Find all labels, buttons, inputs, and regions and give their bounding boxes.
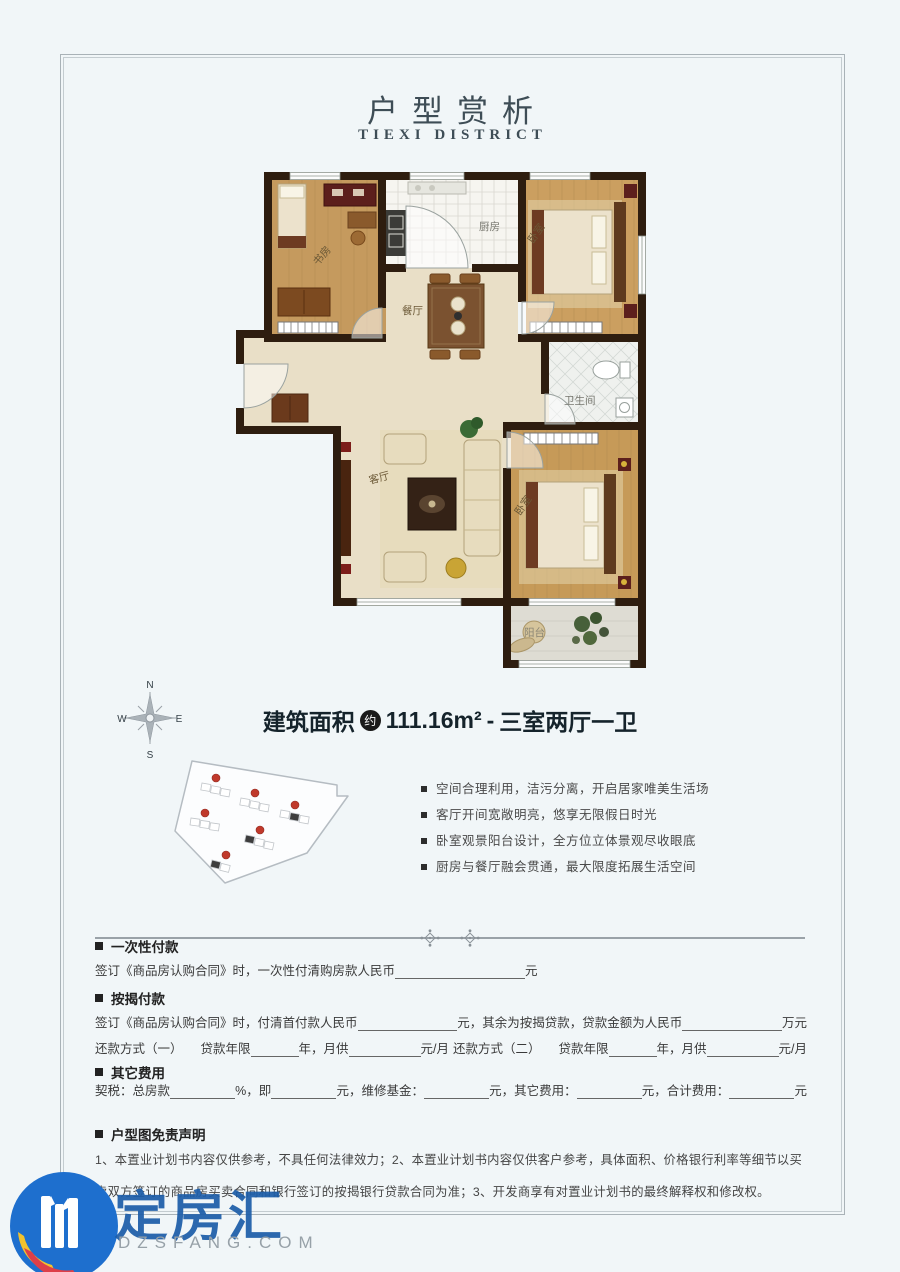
area-separator: - bbox=[487, 707, 495, 734]
one-time-payment-line: 签订《商品房认购合同》时，一次性付清购房款人民币 元 bbox=[95, 960, 807, 979]
list-item: 客厅开间宽敞明亮，悠享无限假日时光 bbox=[421, 808, 726, 823]
fill-in-blank bbox=[707, 1042, 779, 1057]
dining-table bbox=[428, 274, 484, 359]
feature-list: 空间合理利用，洁污分离，开启居家唯美生活场 客厅开间宽敞明亮，悠享无限假日时光 … bbox=[421, 782, 726, 886]
mortgage-line-2: 还款方式（一） 贷款年限 年，月供 元/月 还款方式（二） 贷款年限 年，月供 … bbox=[95, 1038, 807, 1057]
pay-text: 年，月供 bbox=[299, 1038, 349, 1057]
disclaimer-line-1: 1、本置业计划书内容仅供参考，不具任何法律效力；2、本置业计划书内容仅供客户参考… bbox=[95, 1150, 807, 1168]
list-item: 卧室观景阳台设计，全方位立体景观尽收眼底 bbox=[421, 834, 726, 849]
heading-text: 其它费用 bbox=[111, 1062, 165, 1082]
section-divider bbox=[95, 929, 805, 947]
repayment-option-1: 还款方式（一） 贷款年限 年，月供 元/月 bbox=[95, 1038, 449, 1057]
feature-text: 厨房与餐厅融会贯通，最大限度拓展生活空间 bbox=[436, 860, 696, 875]
feature-text: 空间合理利用，洁污分离，开启居家唯美生活场 bbox=[436, 782, 709, 797]
divider-ornament-icon bbox=[460, 929, 480, 947]
fill-in-blank bbox=[577, 1084, 642, 1099]
pay-text: 万元 bbox=[782, 1012, 807, 1031]
study-bed bbox=[278, 184, 306, 248]
pay-text: 元，合计费用： bbox=[642, 1080, 730, 1099]
bullet-square-icon bbox=[421, 812, 427, 818]
brochure-page: 户型赏析 TIEXI DISTRICT bbox=[0, 0, 900, 1272]
approx-badge: 约 bbox=[360, 710, 381, 731]
fill-in-blank bbox=[424, 1084, 489, 1099]
fill-in-blank bbox=[358, 1016, 458, 1031]
label-kitchen: 厨房 bbox=[479, 220, 500, 233]
label-dining: 餐厅 bbox=[402, 304, 423, 317]
pay-text: 签订《商品房认购合同》时，一次性付清购房款人民币 bbox=[95, 960, 395, 979]
feature-text: 客厅开间宽敞明亮，悠享无限假日时光 bbox=[436, 808, 657, 823]
fill-in-blank bbox=[349, 1042, 421, 1057]
divider-line bbox=[95, 937, 805, 939]
bullet-square-icon bbox=[421, 864, 427, 870]
disclaimer-heading: 户型图免责声明 bbox=[95, 1124, 206, 1144]
hall-cabinet bbox=[272, 394, 308, 422]
pay-text: 贷款年限 bbox=[201, 1038, 251, 1057]
pay-text: 贷款年限 bbox=[558, 1038, 608, 1057]
one-time-payment-heading: 一次性付款 bbox=[95, 936, 179, 956]
study-radiator bbox=[278, 322, 338, 333]
pay-text: 元，维修基金： bbox=[336, 1080, 424, 1099]
pay-text: 元，其它费用： bbox=[489, 1080, 577, 1099]
feature-text: 卧室观景阳台设计，全方位立体景观尽收眼底 bbox=[436, 834, 696, 849]
fill-in-blank bbox=[170, 1084, 235, 1099]
watermark-domain: DZSFANG.COM bbox=[118, 1233, 320, 1253]
compass-w: W bbox=[117, 714, 127, 725]
mortgage-line-1: 签订《商品房认购合同》时，付清首付款人民币 元，其余为按揭贷款，贷款金额为人民币… bbox=[95, 1012, 807, 1031]
fill-in-blank bbox=[682, 1016, 782, 1031]
pay-text: 签订《商品房认购合同》时，付清首付款人民币 bbox=[95, 1012, 358, 1031]
fill-in-blank bbox=[395, 964, 525, 979]
page-subtitle: TIEXI DISTRICT bbox=[0, 127, 900, 144]
heading-square-icon bbox=[95, 1068, 103, 1076]
other-costs-line: 契税：总房款 %，即 元，维修基金： 元，其它费用： 元，合计费用： 元 bbox=[95, 1080, 807, 1099]
repayment-option-2: 还款方式（二） 贷款年限 年，月供 元/月 bbox=[453, 1038, 807, 1057]
pay-text: 元，其余为按揭贷款，贷款金额为人民币 bbox=[457, 1012, 682, 1031]
fill-in-blank bbox=[271, 1084, 336, 1099]
heading-text: 户型图免责声明 bbox=[111, 1124, 206, 1144]
area-summary: 建筑面积 约 111.16m² - 三室两厅一卫 bbox=[160, 703, 740, 737]
other-costs-heading: 其它费用 bbox=[95, 1062, 165, 1082]
fill-in-blank bbox=[251, 1042, 299, 1057]
list-item: 空间合理利用，洁污分离，开启居家唯美生活场 bbox=[421, 782, 726, 797]
pay-text: %，即 bbox=[235, 1080, 271, 1099]
bullet-square-icon bbox=[421, 786, 427, 792]
pay-text: 元/月 bbox=[779, 1038, 807, 1057]
fill-in-blank bbox=[729, 1084, 794, 1099]
pay-text: 元 bbox=[794, 1080, 807, 1099]
watermark-logo-icon bbox=[8, 1170, 120, 1272]
area-layout: 三室两厅一卫 bbox=[499, 703, 637, 737]
page-title: 户型赏析 bbox=[0, 86, 900, 131]
pay-text: 契税：总房款 bbox=[95, 1080, 170, 1099]
site-plan bbox=[158, 756, 373, 891]
heading-square-icon bbox=[95, 1130, 103, 1138]
pay-text: 年，月供 bbox=[657, 1038, 707, 1057]
label-balcony: 阳台 bbox=[524, 626, 545, 639]
pay-text: 还款方式（二） bbox=[453, 1038, 541, 1057]
study-wardrobe bbox=[278, 288, 330, 316]
list-item: 厨房与餐厅融会贯通，最大限度拓展生活空间 bbox=[421, 860, 726, 875]
area-value: 111.16m² bbox=[386, 707, 482, 734]
pay-text: 元 bbox=[525, 960, 538, 979]
bullet-square-icon bbox=[421, 838, 427, 844]
pay-text: 还款方式（一） bbox=[95, 1038, 183, 1057]
heading-square-icon bbox=[95, 942, 103, 950]
heading-square-icon bbox=[95, 994, 103, 1002]
compass-n: N bbox=[146, 680, 153, 691]
area-label: 建筑面积 bbox=[263, 703, 355, 737]
heading-text: 一次性付款 bbox=[111, 936, 179, 956]
mortgage-payment-heading: 按揭付款 bbox=[95, 988, 165, 1008]
study-dresser bbox=[324, 184, 376, 206]
label-bathroom: 卫生间 bbox=[564, 394, 596, 407]
floorplan-drawing: 书房 厨房 餐厅 卧室 卫生间 客厅 卧室 阳台 bbox=[232, 172, 650, 668]
divider-ornament-icon bbox=[420, 929, 440, 947]
fill-in-blank bbox=[609, 1042, 657, 1057]
heading-text: 按揭付款 bbox=[111, 988, 165, 1008]
pay-text: 元/月 bbox=[421, 1038, 449, 1057]
compass-s: S bbox=[147, 750, 154, 761]
